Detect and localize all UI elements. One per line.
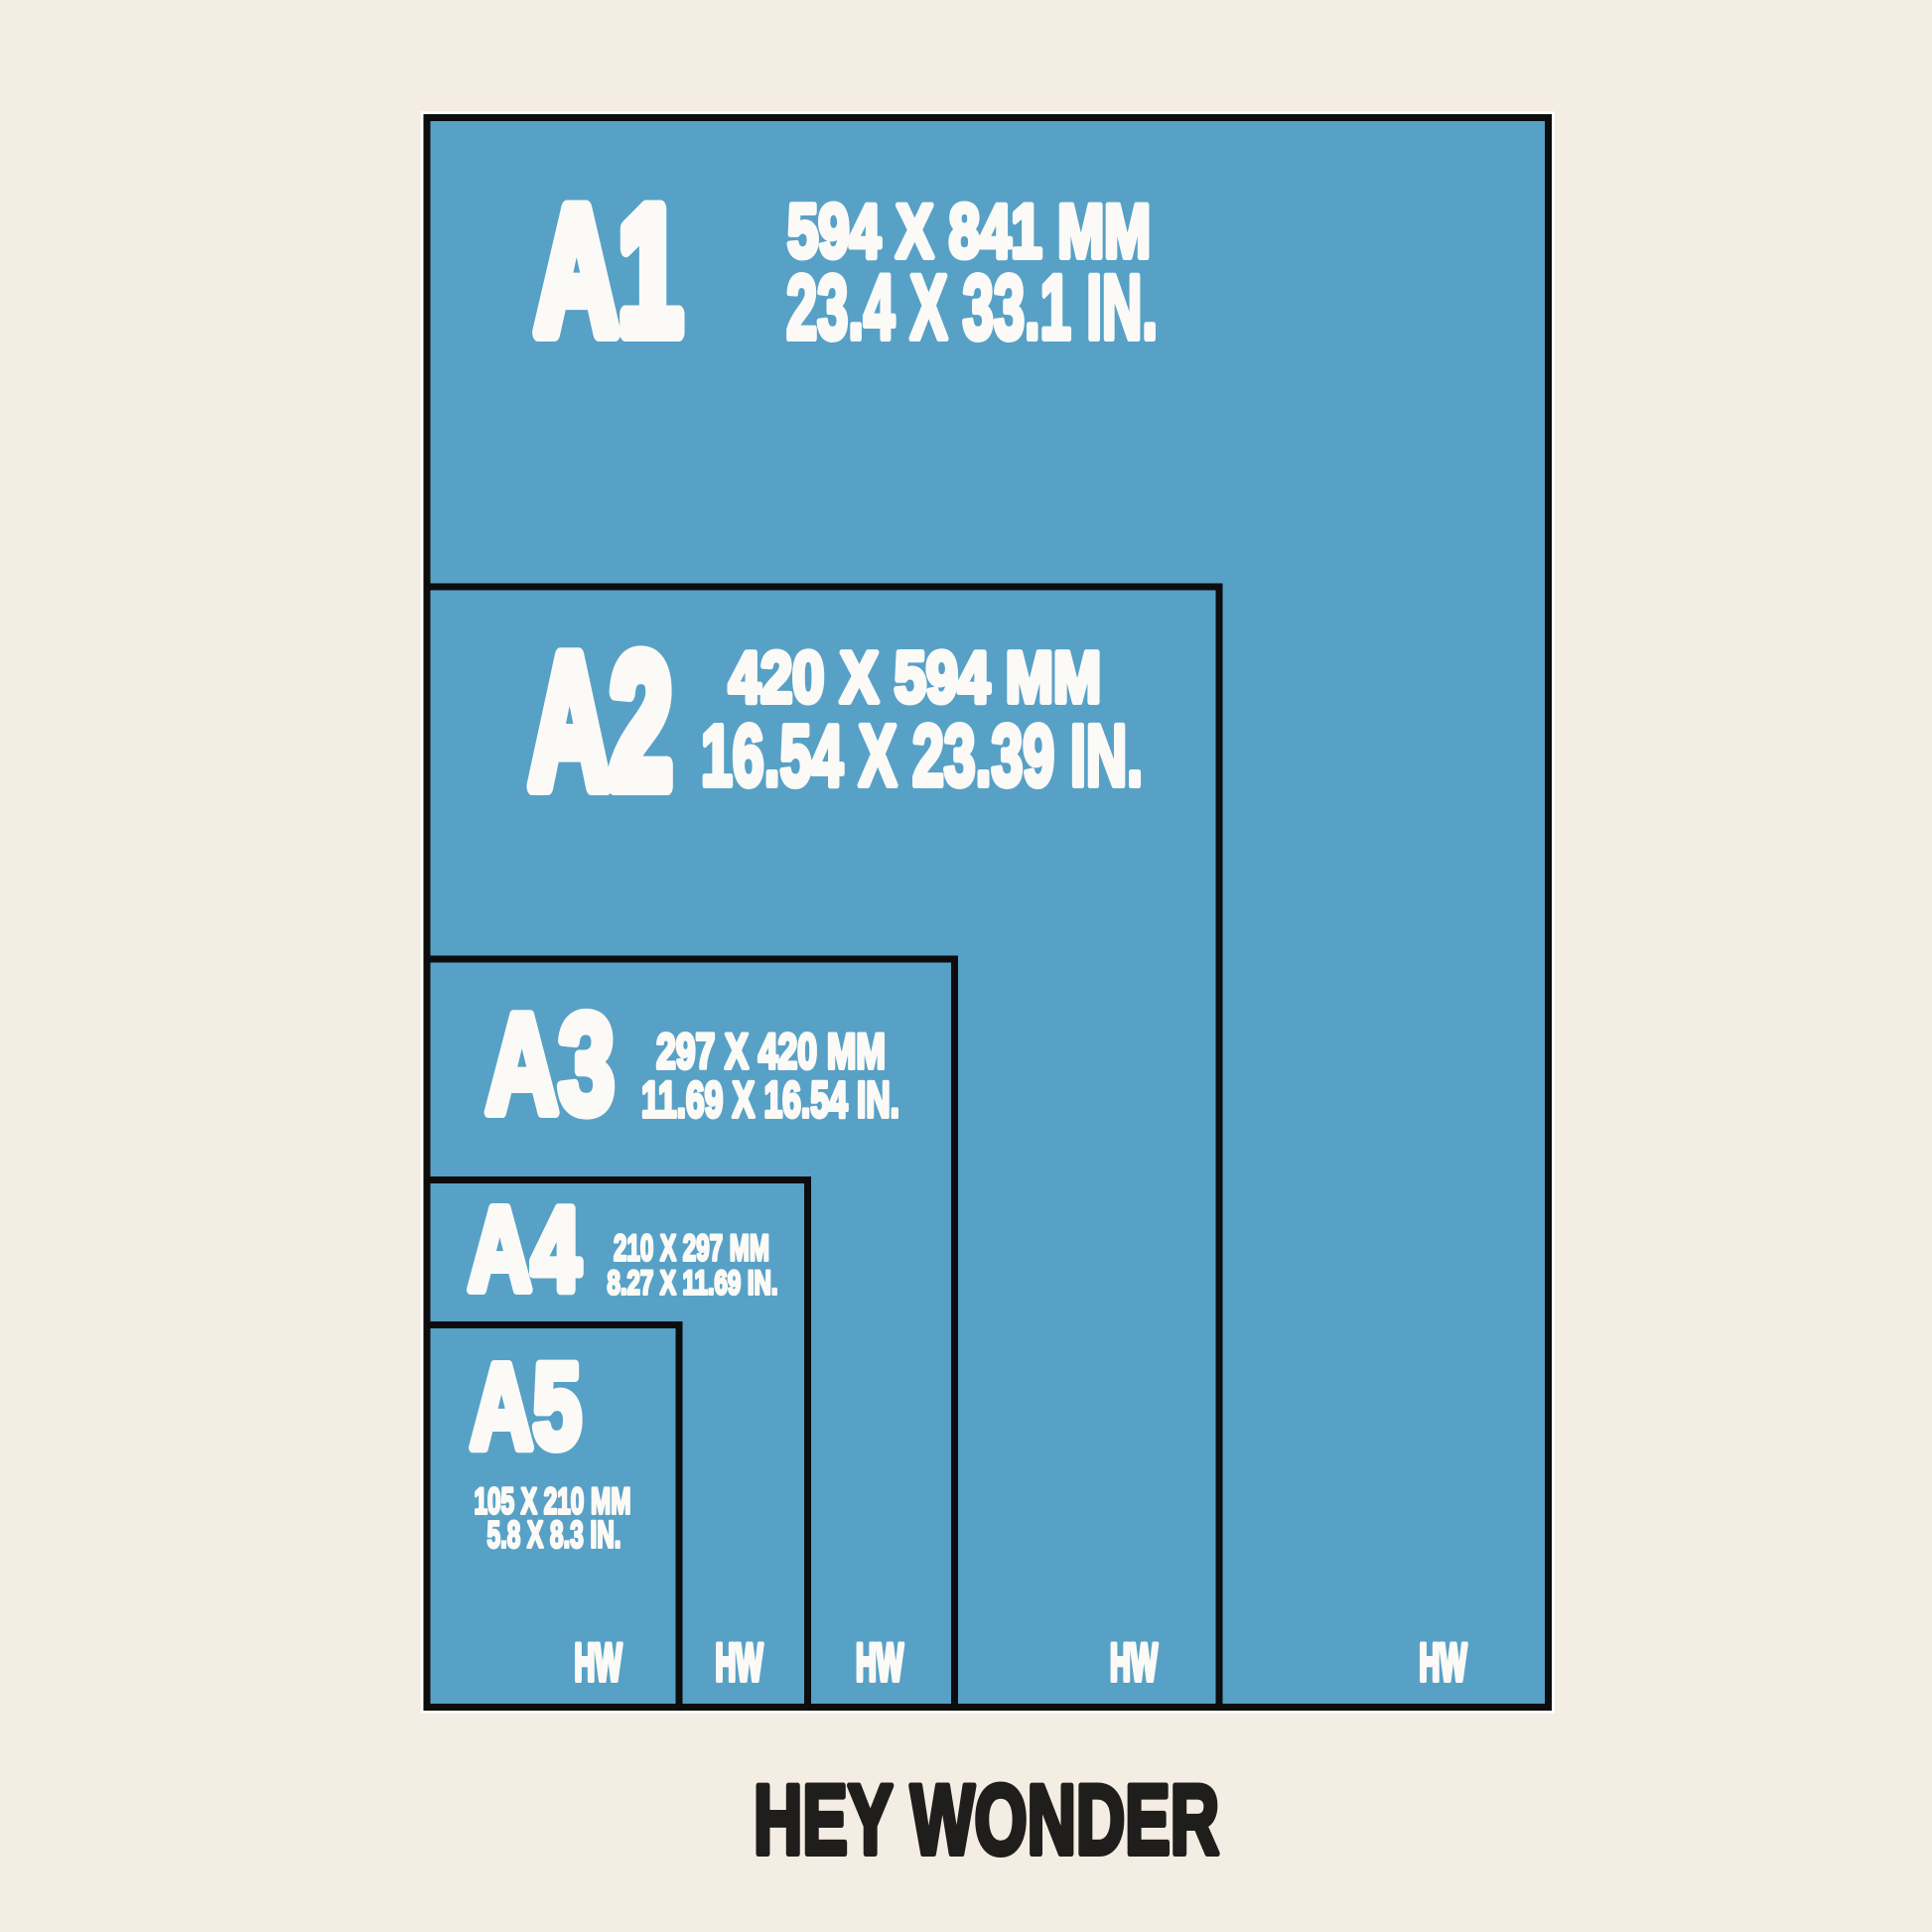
svg-text:A3: A3 xyxy=(485,986,615,1144)
svg-text:8.27 X 11.69 IN.: 8.27 X 11.69 IN. xyxy=(608,1265,778,1303)
svg-text:11.69 X 16.54 IN.: 11.69 X 16.54 IN. xyxy=(641,1071,899,1128)
svg-text:HW: HW xyxy=(575,1634,622,1693)
svg-text:A5: A5 xyxy=(471,1338,582,1473)
svg-text:16.54 X 23.39 IN.: 16.54 X 23.39 IN. xyxy=(701,708,1143,804)
svg-text:A4: A4 xyxy=(469,1183,581,1315)
svg-text:5.8 X 8.3 IN.: 5.8 X 8.3 IN. xyxy=(487,1515,621,1557)
svg-text:HEY WONDER: HEY WONDER xyxy=(754,1764,1219,1874)
svg-text:HW: HW xyxy=(856,1634,903,1693)
svg-text:210 X 297 MM: 210 X 297 MM xyxy=(614,1228,769,1269)
svg-text:A2: A2 xyxy=(529,617,672,827)
svg-text:23.4 X 33.1 IN.: 23.4 X 33.1 IN. xyxy=(786,257,1158,358)
svg-text:HW: HW xyxy=(716,1634,763,1693)
svg-text:A1: A1 xyxy=(535,171,682,371)
svg-text:HW: HW xyxy=(1420,1634,1467,1693)
svg-text:420 X 594 MM: 420 X 594 MM xyxy=(729,638,1101,718)
svg-text:HW: HW xyxy=(1110,1634,1158,1693)
